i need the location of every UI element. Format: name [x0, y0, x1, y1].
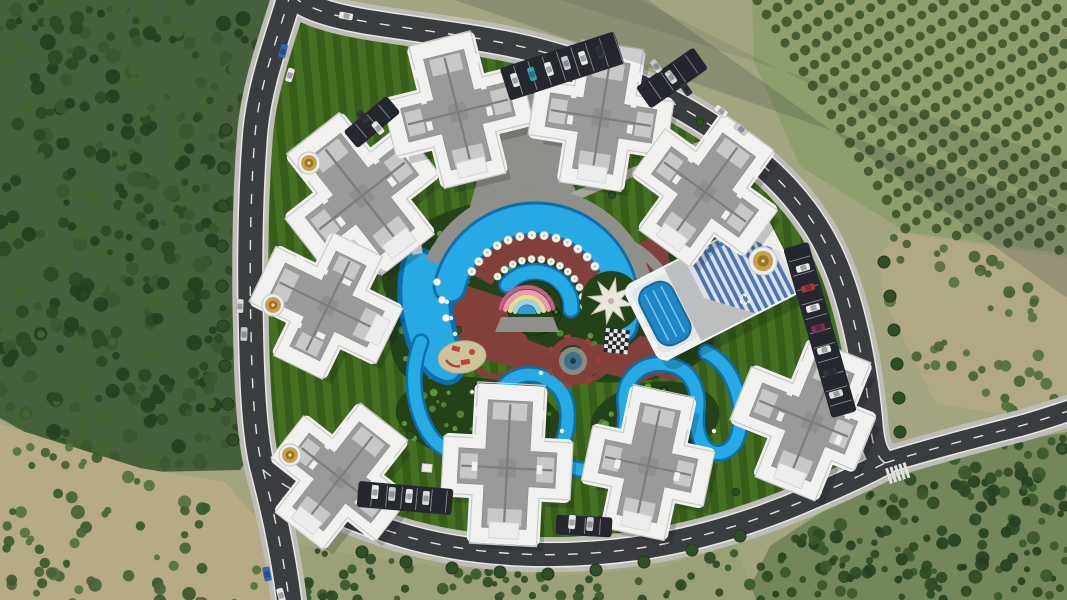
orchard-tree — [882, 195, 892, 205]
tree-canopy — [208, 64, 217, 73]
tree-canopy — [96, 148, 111, 163]
tree-canopy — [220, 305, 226, 311]
tree-canopy — [521, 576, 528, 583]
tree-canopy — [820, 561, 832, 573]
orchard-tree — [903, 60, 913, 70]
tree-canopy — [772, 591, 779, 598]
tree-canopy — [31, 81, 45, 95]
tree-canopy — [10, 175, 21, 186]
tree-canopy — [139, 218, 149, 228]
car-cabin — [406, 493, 412, 499]
tree-canopy — [95, 92, 107, 104]
tree-canopy — [946, 361, 957, 372]
tree-canopy — [894, 576, 902, 584]
tree-canopy — [871, 550, 880, 559]
tree-canopy — [1000, 360, 1011, 371]
parked-car — [422, 491, 430, 506]
tree-canopy — [71, 505, 85, 519]
orchard-tree — [891, 89, 899, 97]
chess-square — [607, 348, 611, 352]
chess-square — [612, 341, 616, 345]
tree-canopy — [911, 516, 918, 523]
umbrella-pole — [519, 235, 521, 237]
orchard-tree — [932, 224, 942, 234]
tree-canopy — [890, 234, 898, 242]
tree-canopy — [511, 585, 521, 595]
chess-square — [609, 336, 613, 340]
tree-canopy — [106, 6, 113, 13]
orchard-tree — [830, 67, 839, 76]
tree-canopy — [123, 570, 134, 581]
tree-canopy — [61, 461, 70, 470]
tree-canopy — [46, 306, 58, 318]
tree-canopy — [220, 60, 226, 66]
tree-canopy — [148, 219, 159, 230]
chess-square — [608, 340, 612, 344]
tree-canopy — [112, 0, 128, 16]
tree-canopy — [868, 491, 875, 498]
tree-canopy — [122, 429, 137, 444]
tree-canopy — [27, 229, 35, 237]
orchard-tree — [762, 10, 772, 20]
tree-canopy — [196, 403, 206, 413]
tree-canopy — [97, 10, 105, 18]
orchard-tree — [1032, 139, 1041, 148]
orchard-tree — [836, 124, 845, 133]
tree-canopy — [90, 54, 99, 63]
tree-canopy — [322, 551, 328, 557]
tree-canopy — [178, 198, 187, 207]
tree-canopy — [369, 574, 376, 581]
tree-canopy — [169, 79, 175, 85]
pool-lounger — [453, 332, 457, 336]
tree-canopy — [900, 517, 908, 525]
orchard-tree — [923, 67, 933, 77]
tree-canopy — [585, 576, 593, 584]
tree-canopy — [219, 102, 228, 111]
tree-canopy — [182, 388, 197, 403]
orchard-tree — [892, 67, 902, 77]
tree-canopy — [153, 34, 162, 43]
tree-canopy — [34, 567, 44, 577]
orchard-tree — [864, 167, 873, 176]
orchard-tree — [935, 38, 945, 48]
tree-canopy — [148, 429, 156, 437]
tree-canopy — [1037, 447, 1049, 459]
tree-canopy — [713, 561, 721, 569]
orchard-tree — [854, 32, 863, 41]
tree-canopy — [139, 384, 146, 391]
tree-canopy — [46, 567, 57, 578]
orchard-tree — [844, 17, 853, 26]
tree-canopy — [175, 459, 184, 468]
tree-canopy — [86, 576, 96, 586]
tree-canopy — [192, 51, 199, 58]
tree-canopy — [503, 577, 510, 584]
tree-canopy — [145, 176, 160, 191]
orchard-tree — [852, 53, 862, 63]
tree-canopy — [199, 362, 208, 371]
tree-canopy — [164, 383, 173, 392]
tree-canopy — [157, 277, 170, 290]
chess-square — [619, 350, 623, 354]
tree-canopy — [1059, 445, 1066, 452]
tree-canopy — [757, 563, 765, 571]
shrub — [444, 423, 448, 427]
orchard-tree — [952, 231, 962, 241]
orchard-tree — [931, 103, 940, 112]
tree-canopy — [896, 553, 908, 565]
tree-canopy — [152, 313, 163, 324]
chess-square — [623, 350, 627, 354]
tree-canopy — [154, 554, 160, 560]
tree-canopy — [982, 389, 990, 397]
street-tree — [590, 564, 602, 576]
tree-canopy — [115, 155, 126, 166]
tree-canopy — [687, 572, 695, 580]
tree-canopy — [75, 384, 85, 394]
tree-canopy — [958, 466, 972, 480]
tree-canopy — [64, 317, 79, 332]
orchard-tree — [854, 152, 864, 162]
orchard-tree — [1007, 54, 1016, 63]
tree-canopy — [12, 29, 20, 37]
orchard-tree — [1004, 96, 1013, 105]
tree-canopy — [1024, 566, 1030, 572]
tree-canopy — [195, 239, 205, 249]
tree-canopy — [1024, 550, 1030, 556]
umbrella — [528, 256, 535, 263]
shrub — [609, 411, 614, 416]
street-tree — [884, 290, 896, 302]
chess-square — [617, 337, 621, 341]
orchard-tree — [1029, 39, 1038, 48]
tree-canopy — [846, 541, 856, 551]
tree-canopy — [1001, 527, 1012, 538]
tree-canopy — [154, 583, 166, 595]
tree-canopy — [593, 583, 602, 592]
tree-canopy — [161, 241, 175, 255]
chess-square — [625, 330, 629, 334]
tree-canopy — [859, 505, 869, 515]
chess-square — [616, 341, 620, 345]
tree-canopy — [167, 1, 180, 14]
street-tree — [227, 434, 239, 446]
tree-canopy — [137, 105, 149, 117]
orchard-tree — [1000, 18, 1009, 27]
tree-canopy — [936, 537, 948, 549]
orchard-tree — [1051, 145, 1061, 155]
orchard-tree — [1052, 4, 1061, 13]
tree-canopy — [927, 497, 940, 510]
orchard-tree — [1031, 18, 1039, 26]
tree-canopy — [1029, 298, 1038, 307]
tree-canopy — [171, 439, 185, 453]
tree-canopy — [940, 244, 948, 252]
orchard-tree — [881, 74, 890, 83]
chess-square — [620, 342, 624, 346]
tree-canopy — [63, 560, 70, 567]
tree-canopy — [1057, 511, 1064, 518]
tree-canopy — [160, 456, 169, 465]
tree-canopy — [9, 508, 16, 515]
car-cabin — [241, 331, 246, 337]
street-tree — [220, 124, 232, 136]
orchard-tree — [991, 124, 1001, 134]
tree-canopy — [3, 521, 12, 530]
tree-canopy — [62, 260, 72, 270]
tree-canopy — [160, 219, 167, 226]
tree-canopy — [67, 47, 74, 54]
street-tree — [494, 566, 506, 578]
tree-canopy — [53, 489, 63, 499]
tree-canopy — [961, 586, 972, 597]
tree-canopy — [47, 109, 55, 117]
tree-canopy — [988, 497, 997, 506]
tree-canopy — [56, 345, 64, 353]
orchard-tree — [897, 3, 906, 12]
orchard-tree — [914, 53, 923, 62]
orchard-tree — [855, 10, 864, 19]
umbrella — [556, 262, 563, 269]
tree-canopy — [926, 590, 935, 599]
chess-square — [605, 332, 609, 336]
tree-canopy — [995, 469, 1003, 477]
orchard-tree — [884, 31, 894, 41]
tree-canopy — [881, 566, 887, 572]
street-tree — [222, 398, 234, 410]
tree-canopy — [121, 125, 135, 139]
tree-canopy — [125, 277, 134, 286]
tree-canopy — [787, 587, 797, 597]
orchard-tree — [1026, 82, 1035, 91]
tree-canopy — [101, 226, 112, 237]
tree-canopy — [192, 185, 200, 193]
tree-canopy — [35, 545, 45, 555]
tree-canopy — [144, 480, 155, 491]
orchard-tree — [963, 81, 973, 91]
parked-car — [405, 489, 413, 504]
tree-canopy — [98, 109, 106, 117]
tree-canopy — [246, 27, 252, 33]
chess-square — [603, 348, 607, 352]
dome-finial — [288, 453, 291, 456]
orchard-tree — [862, 68, 870, 76]
orchard-tree — [987, 46, 996, 55]
orchard-tree — [998, 39, 1007, 48]
tree-canopy — [6, 402, 16, 412]
tree-canopy — [33, 302, 42, 311]
tree-canopy — [978, 366, 986, 374]
tree-canopy — [109, 339, 116, 346]
tree-canopy — [250, 582, 258, 590]
tree-canopy — [156, 414, 168, 426]
tree-canopy — [36, 229, 45, 238]
tree-canopy — [1033, 350, 1044, 361]
tree-canopy — [1022, 497, 1031, 506]
tree-canopy — [228, 64, 239, 75]
umbrella-pole — [507, 239, 509, 241]
tree-canopy — [12, 118, 25, 131]
orchard-tree — [790, 53, 799, 62]
tree-canopy — [192, 455, 207, 470]
tree-canopy — [62, 429, 70, 437]
orchard-tree — [900, 223, 910, 233]
tree-canopy — [1000, 394, 1009, 403]
tree-canopy — [725, 564, 732, 571]
orchard-tree — [866, 3, 875, 12]
tree-canopy — [123, 383, 136, 396]
orchard-tree — [965, 60, 974, 69]
street-tree — [734, 530, 746, 542]
chess-square — [611, 349, 615, 353]
umbrella-pole — [559, 265, 561, 267]
tree-canopy — [930, 481, 938, 489]
tree-canopy — [184, 143, 195, 154]
tree-canopy — [65, 443, 73, 451]
tree-canopy — [1040, 378, 1052, 390]
tree-canopy — [44, 267, 59, 282]
tree-canopy — [937, 526, 948, 537]
chess-square — [618, 329, 622, 333]
umbrella — [547, 258, 554, 265]
orchard-tree — [799, 67, 809, 77]
orchard-tree — [923, 210, 932, 219]
chess-square — [617, 333, 621, 337]
orchard-tree — [1010, 10, 1020, 20]
gold-dome-tower — [262, 294, 284, 316]
tree-canopy — [182, 587, 196, 600]
tree-canopy — [179, 123, 195, 139]
orchard-tree — [832, 46, 841, 55]
tree-canopy — [998, 486, 1010, 498]
orchard-tree — [821, 53, 831, 63]
orchard-tree — [773, 3, 783, 13]
tree-canopy — [181, 506, 190, 515]
tree-canopy — [934, 250, 941, 257]
tree-canopy — [234, 29, 243, 38]
umbrella — [574, 245, 582, 253]
umbrella — [591, 262, 599, 270]
tree-canopy — [1004, 468, 1013, 477]
tree-canopy — [72, 335, 83, 346]
tree-canopy — [96, 356, 107, 367]
tree-canopy — [164, 94, 170, 100]
tree-canopy — [86, 188, 102, 204]
balcony — [539, 410, 545, 419]
palm-crown — [554, 310, 557, 313]
orchard-tree — [925, 46, 935, 56]
orchard-tree — [1054, 125, 1063, 134]
tree-canopy — [978, 528, 988, 538]
tree-canopy — [196, 502, 209, 515]
tree-canopy — [141, 398, 156, 413]
tree-canopy — [902, 569, 913, 580]
tree-canopy — [1047, 437, 1055, 445]
street-tree — [218, 162, 230, 174]
tree-canopy — [26, 443, 34, 451]
tree-canopy — [895, 546, 901, 552]
orchard-tree — [872, 60, 881, 69]
umbrella-pole — [577, 248, 579, 250]
tree-canopy — [37, 578, 47, 588]
tree-canopy — [105, 384, 119, 398]
parked-car — [240, 327, 247, 341]
tree-canopy — [50, 318, 64, 332]
tree-canopy — [1022, 282, 1033, 293]
shrub — [441, 402, 447, 408]
orchard-tree — [838, 103, 847, 112]
balcony — [538, 438, 544, 447]
tree-canopy — [5, 19, 17, 31]
tree-canopy — [1024, 451, 1032, 459]
orchard-tree — [1047, 67, 1057, 77]
tree-canopy — [780, 567, 791, 578]
tree-canopy — [206, 399, 216, 409]
pool-lounger — [539, 371, 543, 375]
tree-canopy — [340, 580, 351, 591]
orchard-tree — [922, 89, 931, 98]
umbrella — [475, 257, 483, 265]
umbrella-pole — [578, 286, 580, 288]
fountain-center — [570, 358, 576, 364]
tree-canopy — [388, 558, 394, 564]
orchard-tree — [917, 11, 926, 20]
street-tree — [686, 544, 698, 556]
orchard-tree — [938, 18, 947, 27]
tree-canopy — [199, 256, 211, 268]
tree-canopy — [37, 152, 45, 160]
tree-canopy — [449, 583, 456, 590]
umbrella — [571, 275, 578, 282]
tree-canopy — [81, 459, 87, 465]
tree-canopy — [56, 137, 69, 150]
orchard-tree — [1057, 82, 1066, 91]
shrub — [457, 411, 465, 419]
tree-canopy — [1014, 376, 1025, 387]
tree-canopy — [80, 278, 95, 293]
tree-canopy — [66, 375, 77, 386]
orchard-tree — [1018, 46, 1028, 56]
tree-canopy — [203, 371, 217, 385]
tree-canopy — [1032, 547, 1041, 556]
orchard-tree — [916, 32, 925, 41]
tree-canopy — [194, 112, 203, 121]
orchard-tree — [1059, 61, 1067, 70]
tree-canopy — [197, 563, 208, 574]
giant-chessboard — [603, 328, 629, 354]
tree-canopy — [185, 408, 193, 416]
tree-canopy — [129, 63, 141, 75]
orchard-tree — [874, 39, 883, 48]
umbrella — [538, 256, 545, 263]
tree-canopy — [115, 183, 125, 193]
tree-canopy — [70, 366, 76, 372]
tree-canopy — [184, 37, 196, 49]
tree-canopy — [116, 367, 129, 380]
orchard-tree — [991, 4, 1000, 13]
poolside-pergola — [422, 464, 433, 473]
tree-canopy — [29, 3, 39, 13]
gold-dome-tower — [749, 247, 777, 275]
tree-canopy — [48, 50, 63, 65]
tree-canopy — [236, 11, 251, 26]
umbrella — [493, 241, 501, 249]
chess-square — [608, 344, 612, 348]
tree-canopy — [93, 297, 108, 312]
tree-canopy — [132, 36, 144, 48]
tree-canopy — [83, 145, 96, 158]
